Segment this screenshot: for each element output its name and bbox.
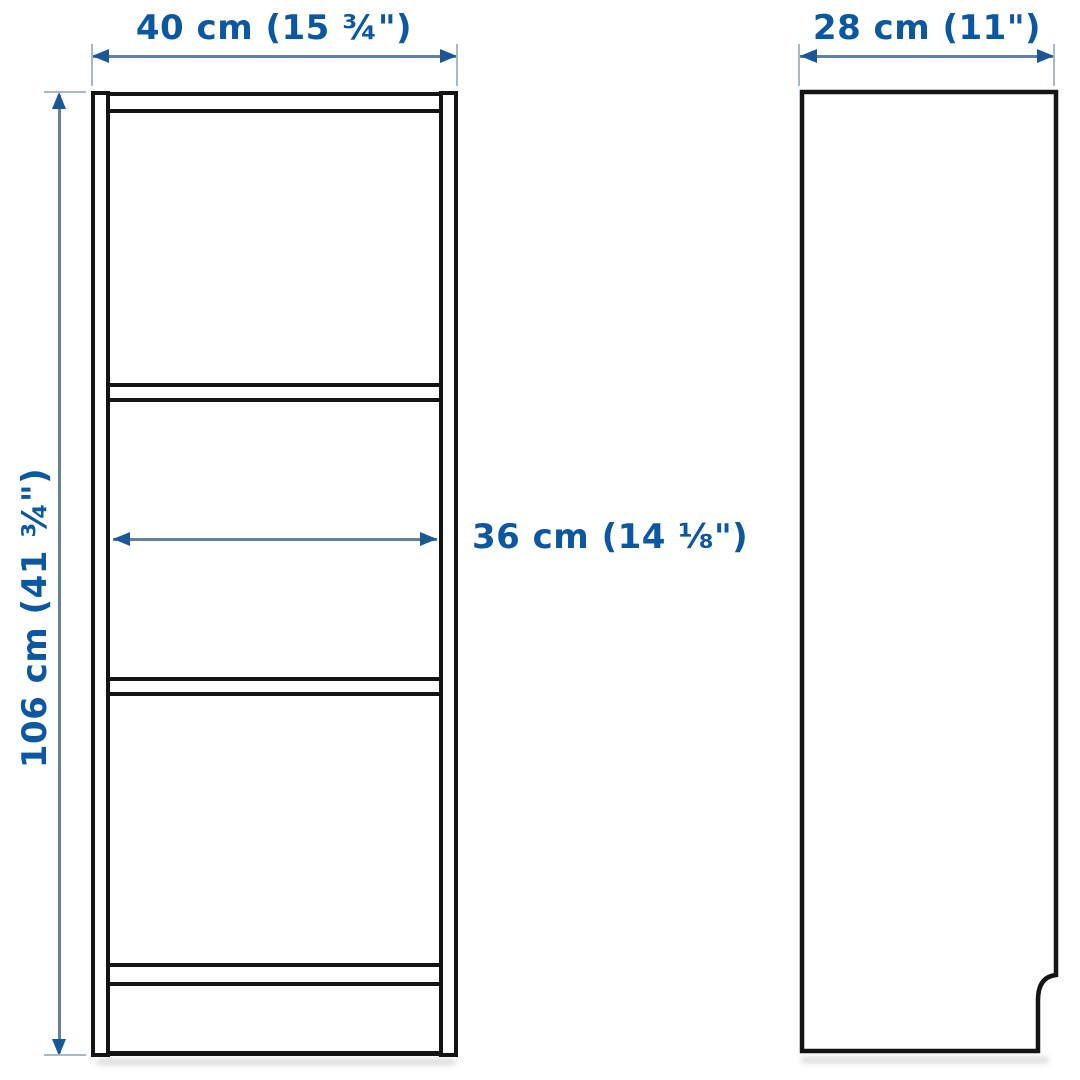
ground-shadow-side: [801, 1057, 1049, 1063]
side-view: [0, 0, 1080, 1080]
side-panel-outline: [802, 92, 1056, 1051]
dimension-diagram: 40 cm (15 ¾") 28 cm (11") 106 cm (41 ¾"): [0, 0, 1080, 1080]
ground-shadow-front: [96, 1059, 456, 1065]
